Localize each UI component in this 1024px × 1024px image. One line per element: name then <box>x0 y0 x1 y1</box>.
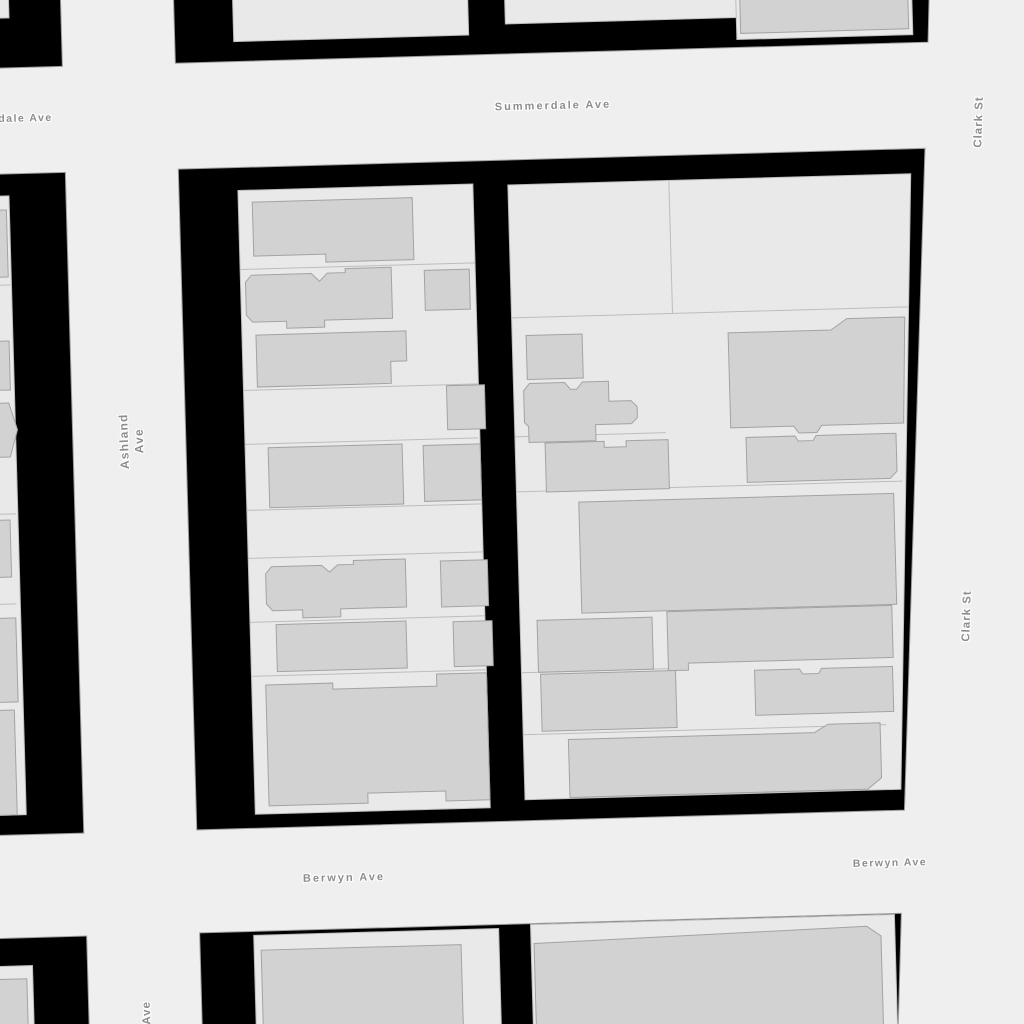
building-footprint <box>0 979 31 1024</box>
building-footprint <box>537 617 653 672</box>
building-footprint <box>261 945 465 1024</box>
street-label-berwyn-east: Berwyn Ave <box>853 856 928 870</box>
parcel <box>0 0 9 21</box>
building-footprint <box>0 520 12 579</box>
building-footprint <box>446 385 485 430</box>
street-label-ashland: Ashland Ave <box>116 413 148 470</box>
building-footprint <box>423 444 482 502</box>
building-footprint <box>737 0 908 33</box>
map-rotated-layer <box>0 0 1024 1024</box>
building-footprint <box>268 444 404 508</box>
building-footprint <box>541 670 678 731</box>
building-footprint <box>728 317 908 435</box>
building-footprint <box>276 621 407 672</box>
street-label-ashland-line2: Ave <box>131 413 148 469</box>
building-footprint <box>0 618 18 705</box>
city-block-nw <box>0 0 62 71</box>
map-canvas[interactable]: Summerdale Ave Summerdale Ave Clark St C… <box>0 0 1024 1024</box>
street-label-berwyn-west: Berwyn Ave <box>303 871 385 885</box>
building-footprint <box>534 926 886 1024</box>
building-footprint <box>0 341 10 393</box>
building-footprint <box>545 440 669 492</box>
building-footprint <box>579 493 897 613</box>
building-footprint <box>746 433 897 482</box>
map-tile <box>0 0 1024 1024</box>
parcel <box>231 0 469 42</box>
building-footprint <box>755 666 894 715</box>
building-footprint <box>424 269 470 310</box>
building-footprint <box>526 334 583 380</box>
building-footprint <box>0 210 8 280</box>
street-label-clark-south: Clark St <box>960 590 974 642</box>
building-footprint <box>0 710 17 817</box>
building-footprint <box>453 621 493 667</box>
street-label-clark-north: Clark St <box>972 96 986 148</box>
building-footprint <box>252 198 414 264</box>
street-label-ashland-line1: Ashland <box>116 413 133 469</box>
building-footprint <box>256 331 407 387</box>
building-footprint <box>440 560 488 607</box>
building-footprint <box>266 673 490 806</box>
